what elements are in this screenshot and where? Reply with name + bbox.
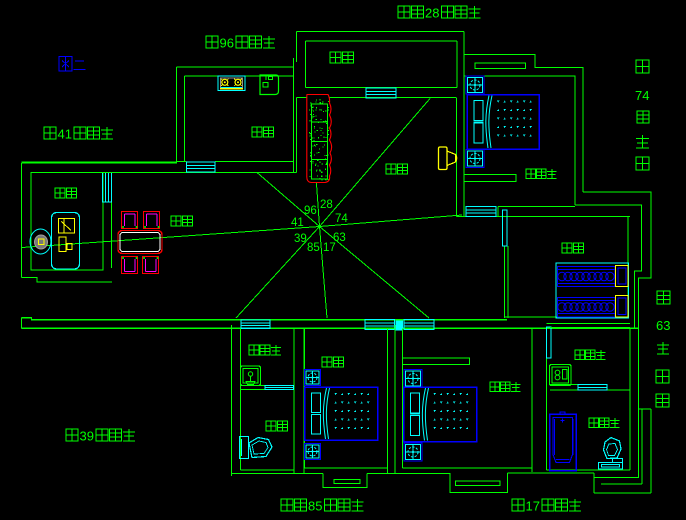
svg-text:74: 74 xyxy=(635,88,649,103)
svg-text:28: 28 xyxy=(425,6,439,21)
svg-text:41: 41 xyxy=(291,217,304,229)
svg-text:85: 85 xyxy=(308,499,322,514)
svg-text:96: 96 xyxy=(304,205,317,217)
svg-text:41: 41 xyxy=(58,127,72,142)
svg-text:74: 74 xyxy=(335,213,348,225)
svg-text:17: 17 xyxy=(323,242,336,254)
svg-text:17: 17 xyxy=(526,499,540,514)
svg-text:39: 39 xyxy=(294,233,307,245)
svg-text:63: 63 xyxy=(656,318,670,333)
svg-text:85: 85 xyxy=(307,242,320,254)
svg-text:28: 28 xyxy=(320,199,333,211)
svg-text:39: 39 xyxy=(80,429,94,444)
svg-text:96: 96 xyxy=(220,36,234,51)
